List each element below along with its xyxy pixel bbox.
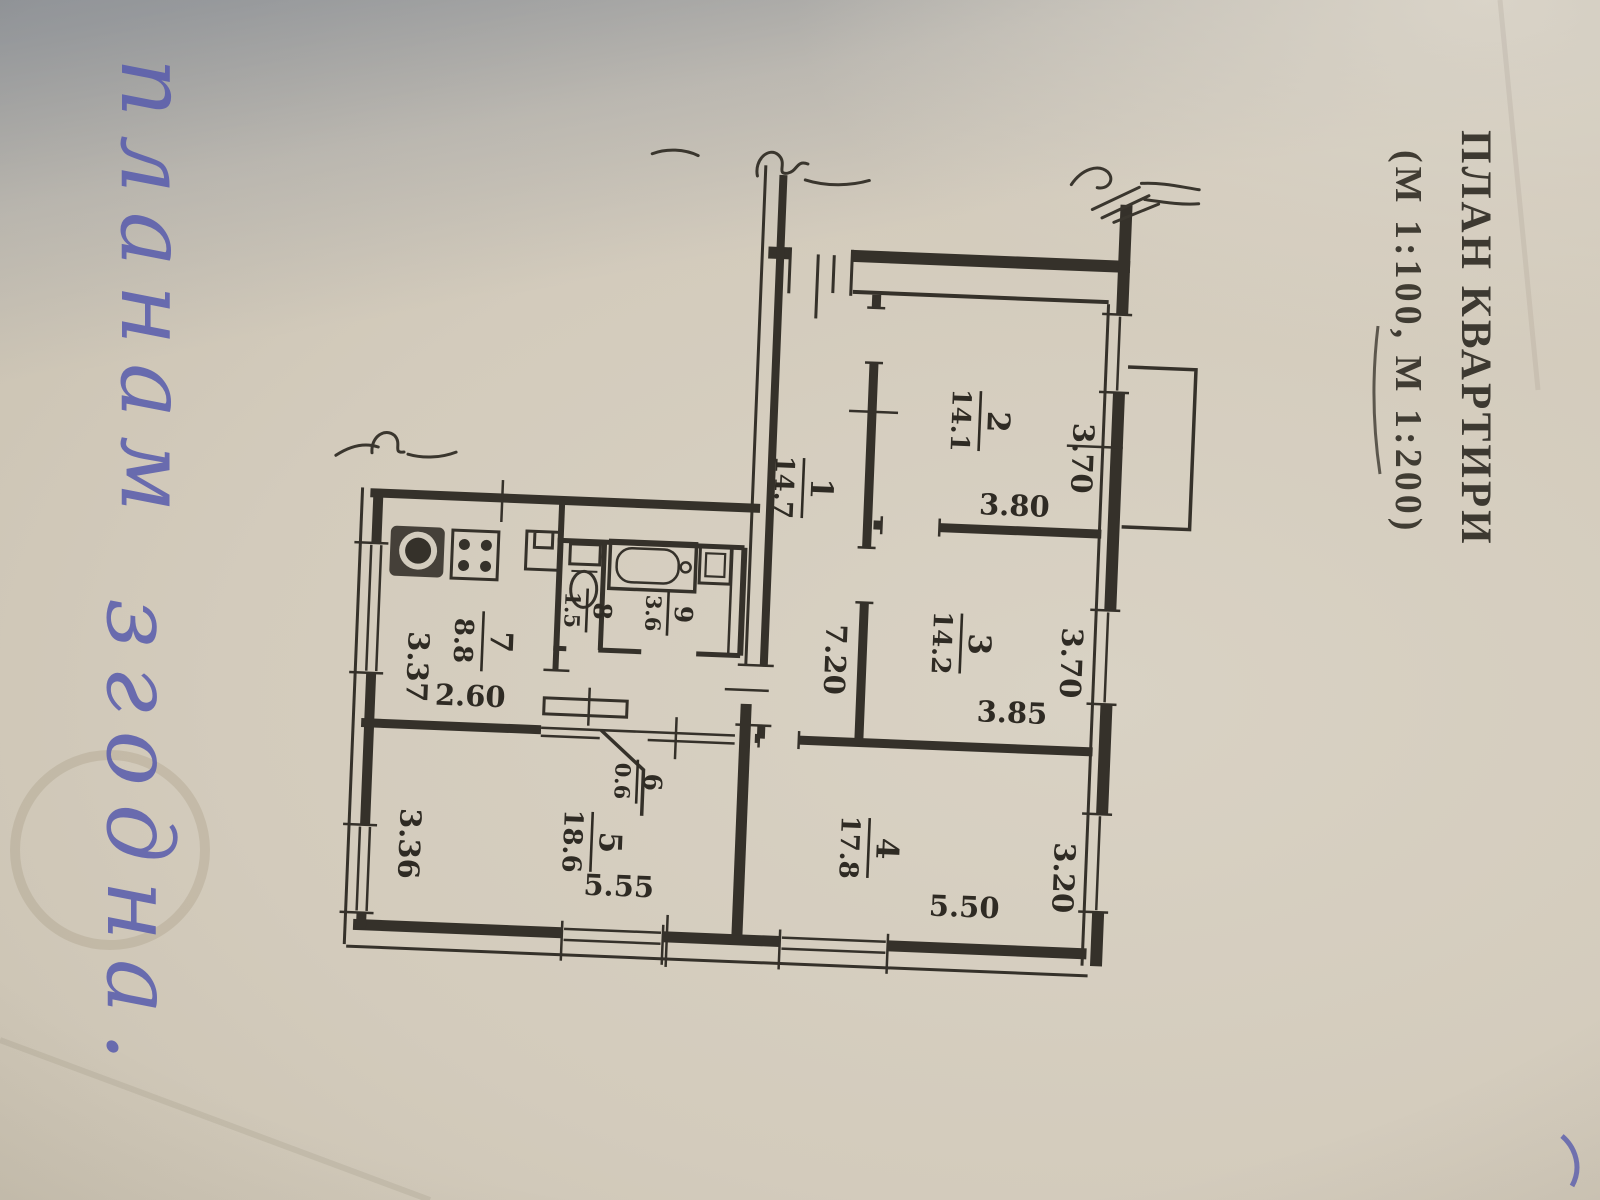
- dim-room2-depth: 3.70: [1064, 422, 1101, 494]
- dim-room4-width: 5.50: [928, 888, 1000, 925]
- handwriting-word-1: планам: [100, 58, 207, 530]
- svg-text:18.6: 18.6: [555, 809, 588, 873]
- svg-text:3.6: 3.6: [640, 594, 666, 632]
- svg-text:17.8: 17.8: [832, 815, 865, 879]
- room-label-4: 4 17.8: [832, 815, 905, 881]
- shaft-box: [1122, 367, 1196, 530]
- paper-crease-right: [1500, 0, 1538, 390]
- svg-text:4: 4: [868, 837, 905, 860]
- dim-kitchen-depth: 3.37: [399, 631, 436, 703]
- svg-text:7: 7: [482, 631, 519, 654]
- floor-plan-drawing: 1 14.7 2 14.1 3 14.2 4 17.8 5: [0, 0, 1600, 1200]
- bathtub-icon: [609, 540, 697, 591]
- dim-room2-width: 3.80: [978, 487, 1050, 524]
- svg-text:1: 1: [802, 477, 839, 500]
- dim-kitchen-width: 2.60: [434, 677, 506, 714]
- svg-text:6: 6: [638, 773, 668, 792]
- scale-underline: [1374, 326, 1380, 474]
- room-label-5: 5 18.6: [555, 809, 628, 875]
- dim-room5-depth: 3.36: [391, 808, 428, 880]
- stove-icon: [451, 530, 499, 580]
- dim-room3-depth: 3.70: [1053, 627, 1090, 699]
- room-label-2: 2 14.1: [944, 388, 1017, 454]
- room-label-3: 3 14.2: [925, 610, 998, 676]
- svg-text:5: 5: [591, 831, 628, 854]
- room-label-8-wc: 8 1.5: [559, 587, 618, 633]
- paper-crease: [0, 1040, 430, 1200]
- svg-text:14.7: 14.7: [767, 455, 800, 519]
- svg-text:1.5: 1.5: [559, 591, 585, 629]
- svg-text:0.6: 0.6: [609, 762, 635, 800]
- kitchen-cabinet-icon: [525, 531, 560, 570]
- apartment-plan: 1 14.7 2 14.1 3 14.2 4 17.8 5: [316, 135, 1204, 987]
- svg-text:2: 2: [979, 410, 1016, 433]
- svg-text:9: 9: [668, 605, 698, 624]
- bath-sink-icon: [699, 546, 731, 584]
- room-label-hall: 1 14.7: [767, 455, 840, 521]
- svg-text:8.8: 8.8: [447, 617, 479, 663]
- dim-room4-depth: 3.20: [1045, 842, 1082, 914]
- entrance-hatch-scribble: [1070, 167, 1200, 226]
- room-label-7-kitchen: 7 8.8: [446, 610, 519, 673]
- room-label-6-closet: 6 0.6: [609, 759, 668, 805]
- dim-room5-width: 5.55: [583, 868, 655, 905]
- svg-text:3: 3: [960, 633, 997, 656]
- room-label-9-bath: 9 3.6: [640, 591, 699, 637]
- handwriting-word-2: згодна.: [86, 598, 193, 1079]
- title-block: ПЛАН КВАРТИРИ (М 1:100, М 1:200): [1374, 130, 1499, 547]
- handwriting-note: планам згодна.: [86, 58, 1577, 1186]
- document-scale: (М 1:100, М 1:200): [1387, 150, 1429, 534]
- kitchen-sink-icon: [389, 526, 445, 578]
- dim-room3-width: 3.85: [976, 694, 1048, 731]
- floor-plan-photo: 1 14.7 2 14.1 3 14.2 4 17.8 5: [0, 0, 1600, 1200]
- svg-text:14.2: 14.2: [925, 610, 958, 674]
- svg-text:8: 8: [587, 602, 617, 621]
- document-title: ПЛАН КВАРТИРИ: [1452, 130, 1499, 547]
- break-line-squiggles: [336, 135, 870, 476]
- dim-hall-length: 7.20: [817, 624, 854, 696]
- handwriting-corner-mark: [1562, 1136, 1577, 1186]
- svg-text:14.1: 14.1: [944, 388, 977, 452]
